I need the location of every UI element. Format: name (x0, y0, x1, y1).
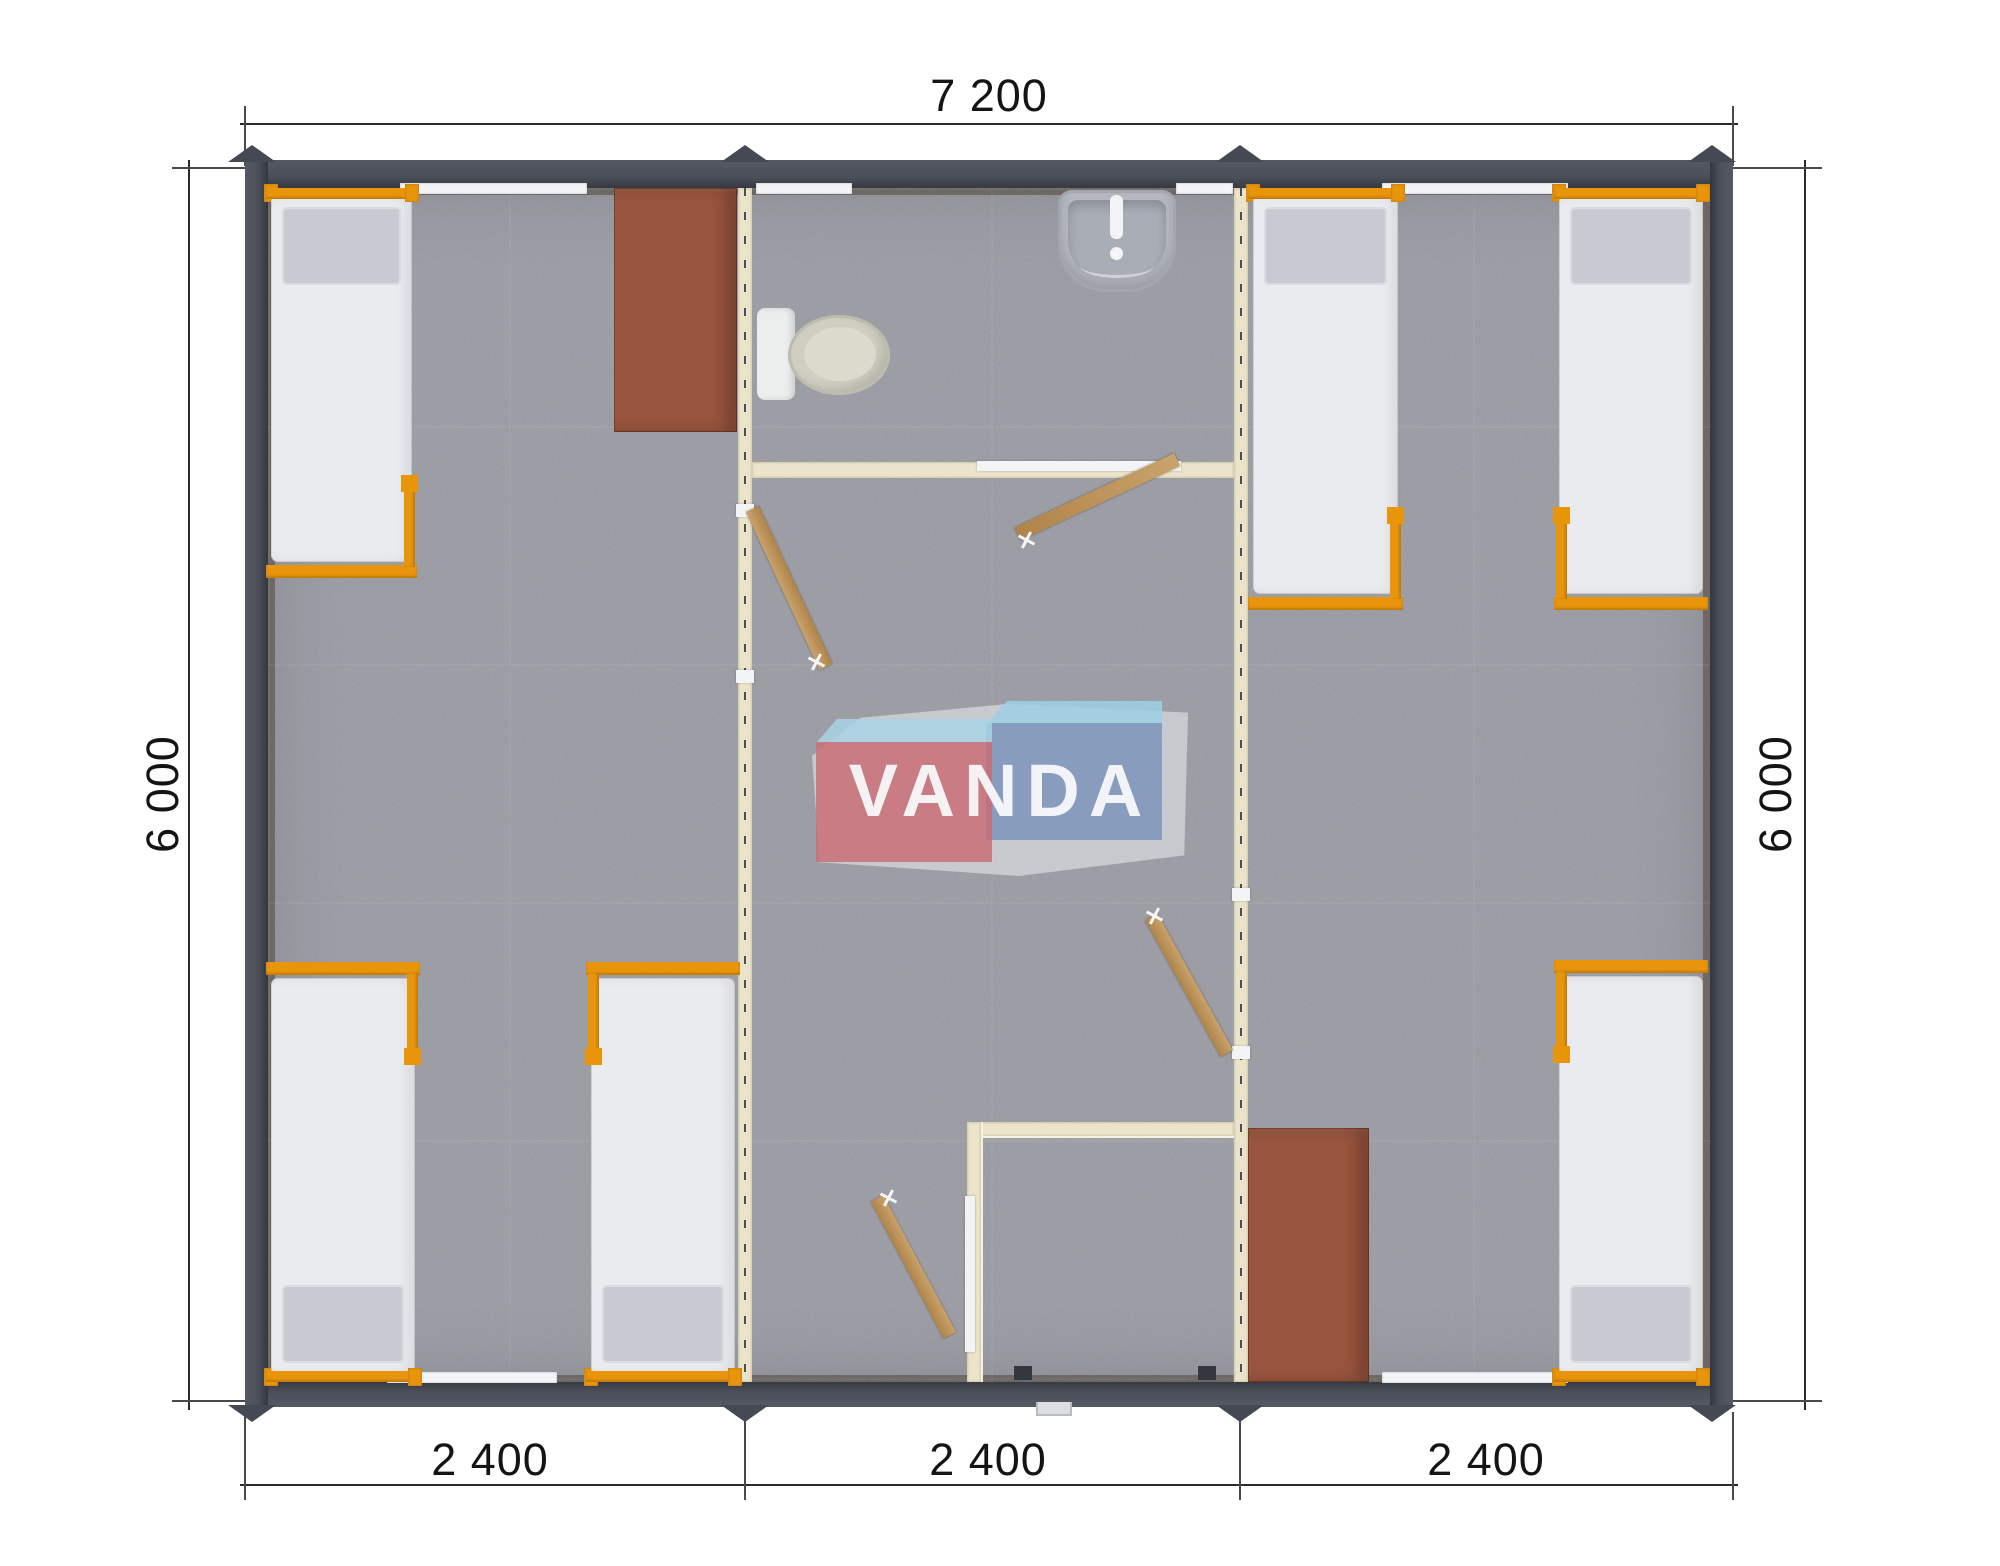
hall-door-frame (965, 1196, 975, 1352)
pillow (602, 1285, 724, 1363)
bed (588, 962, 738, 1382)
pillow (1570, 207, 1692, 285)
roof-joint-marker (721, 1405, 769, 1422)
window (1382, 1372, 1568, 1383)
bed-side-rail (1556, 515, 1567, 599)
roof-joint-marker (1688, 1405, 1736, 1422)
door-handle (806, 652, 826, 672)
pillow (1264, 207, 1387, 285)
mattress (271, 978, 415, 1375)
partition-wall-right-module (1234, 188, 1248, 1382)
window (400, 183, 587, 194)
mattress (271, 195, 412, 562)
extension-line (172, 1400, 248, 1402)
mattress (1559, 976, 1703, 1375)
window (1176, 183, 1233, 194)
watermark-blue-box-top (986, 701, 1162, 725)
door-jamb (736, 670, 754, 683)
door-handle (1016, 530, 1036, 550)
exterior-wall-bottom (245, 1380, 1733, 1407)
wardrobe (1248, 1128, 1369, 1382)
extension-line (172, 167, 248, 169)
bed-foot-bar (266, 962, 420, 975)
bed-foot-bar (1554, 597, 1708, 610)
bed-head-bar (266, 188, 417, 199)
door-handle (878, 1188, 898, 1208)
bed-foot-bar (266, 565, 417, 578)
dimension-line-top (240, 123, 1738, 125)
roof-joint-marker (1688, 145, 1736, 162)
dimension-bottom-label-3: 2 400 (1386, 1434, 1586, 1486)
dimension-left-label: 6 000 (137, 694, 189, 894)
watermark-pink-box-top (816, 719, 992, 743)
roof-joint-marker (228, 145, 276, 162)
extension-line (1728, 167, 1822, 169)
door-jamb (1232, 888, 1250, 901)
roof-joint-marker (228, 1405, 276, 1422)
bed-head-bar (266, 1371, 420, 1382)
bed (1250, 188, 1401, 610)
dimension-right-label: 6 000 (1750, 694, 1802, 894)
extension-line (1732, 1412, 1734, 1500)
dimension-line-right (1804, 160, 1806, 1410)
bed-side-rail (588, 973, 599, 1057)
bed (268, 962, 418, 1382)
mattress (1253, 195, 1398, 594)
extension-line (744, 1412, 746, 1500)
partition-wall-left-module (738, 188, 752, 1382)
exterior-wall-left (245, 160, 268, 1407)
toilet-bowl (788, 315, 890, 395)
entrance-door-jamb (1198, 1366, 1216, 1380)
extension-line (244, 1412, 246, 1500)
bed (268, 188, 415, 578)
watermark-text: VANDA (810, 748, 1190, 833)
bed-head-bar (1554, 1371, 1708, 1382)
bed-foot-bar (1554, 960, 1708, 973)
bed-foot-bar (1248, 597, 1403, 610)
vanda-watermark: VANDA (810, 698, 1190, 883)
dimension-top-label: 7 200 (889, 70, 1089, 122)
window (1382, 183, 1568, 194)
bed (1556, 960, 1706, 1382)
dimension-line-bottom (240, 1484, 1738, 1486)
faucet-icon (1110, 195, 1123, 239)
wardrobe (614, 188, 737, 432)
dimension-line-left (188, 160, 190, 1410)
roof-joint-marker (1216, 145, 1264, 162)
extension-line (1239, 1412, 1241, 1500)
window (756, 183, 852, 194)
bed-head-bar (1248, 188, 1403, 199)
dimension-bottom-label-2: 2 400 (888, 1434, 1088, 1486)
bed-head-bar (586, 1371, 740, 1382)
bed-head-bar (1554, 188, 1708, 199)
entrance-door-jamb (1014, 1366, 1032, 1380)
bed-side-rail (404, 483, 415, 567)
door-jamb (1232, 1046, 1250, 1059)
extension-line (1728, 1400, 1822, 1402)
pillow (282, 1285, 404, 1363)
door-handle (1144, 906, 1164, 926)
washbasin (1058, 190, 1176, 292)
entrance-step (1036, 1402, 1072, 1416)
pillow (1570, 1285, 1692, 1363)
hall-wall-top (967, 1122, 1234, 1138)
floor-plan-canvas: 7 200 6 000 6 000 2 400 2 400 2 400 (0, 0, 2000, 1566)
bed (1556, 188, 1706, 610)
bed-side-rail (1556, 971, 1567, 1055)
basin-curve (1080, 253, 1154, 278)
dimension-bottom-label-1: 2 400 (390, 1434, 590, 1486)
pillow (282, 207, 401, 285)
exterior-wall-right (1710, 160, 1733, 1407)
bed-foot-bar (586, 962, 740, 975)
mattress (1559, 195, 1703, 594)
roof-joint-marker (721, 145, 769, 162)
mattress (591, 978, 735, 1375)
roof-joint-marker (1216, 1405, 1264, 1422)
bed-side-rail (407, 973, 418, 1057)
bed-side-rail (1390, 515, 1401, 599)
